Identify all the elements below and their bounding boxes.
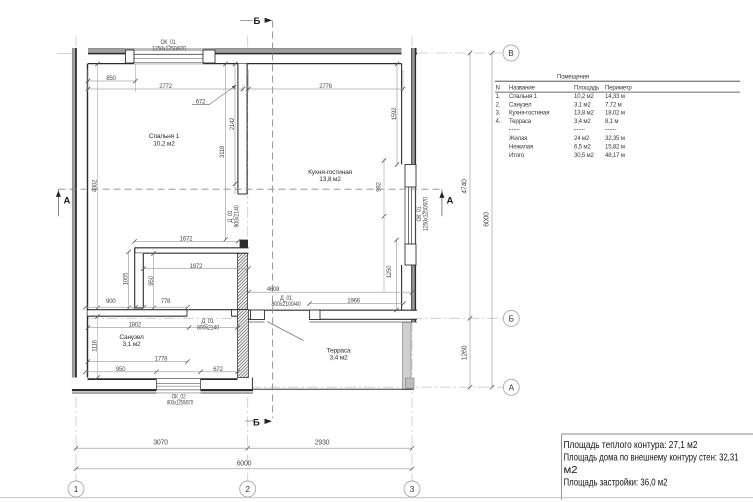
svg-text:950: 950: [148, 275, 155, 285]
svg-text:Площадь застройки: 36,0 м2: Площадь застройки: 36,0 м2: [564, 477, 668, 488]
svg-text:18,02 м: 18,02 м: [605, 110, 625, 117]
svg-text:м2: м2: [564, 465, 578, 476]
svg-text:1260: 1260: [462, 345, 469, 360]
svg-text:Жилая: Жилая: [509, 135, 527, 142]
svg-text:992: 992: [376, 181, 383, 191]
svg-text:13,8 м2: 13,8 м2: [574, 110, 595, 117]
svg-text:900: 900: [106, 298, 116, 305]
svg-text:1250х1250/870: 1250х1250/870: [152, 45, 187, 52]
svg-text:800х2140: 800х2140: [197, 325, 220, 332]
svg-text:13,8 м2: 13,8 м2: [319, 176, 341, 183]
svg-text:2: 2: [245, 485, 250, 494]
svg-text:6000: 6000: [237, 461, 252, 468]
svg-text:3,1 м2: 3,1 м2: [123, 341, 142, 348]
svg-text:Название: Название: [509, 84, 535, 91]
svg-text:1005: 1005: [123, 272, 130, 285]
svg-text:672: 672: [213, 366, 223, 373]
svg-text:Кухня-гостиная: Кухня-гостиная: [308, 169, 352, 176]
svg-text:1: 1: [74, 485, 79, 494]
svg-text:Итого: Итого: [509, 152, 525, 159]
svg-text:4.: 4.: [496, 118, 501, 125]
svg-text:30,5 м2: 30,5 м2: [574, 152, 595, 159]
svg-text:10,2 м2: 10,2 м2: [153, 140, 175, 147]
svg-text:Помещения: Помещения: [557, 74, 589, 81]
svg-text:3070: 3070: [153, 440, 168, 447]
svg-text:Санузел: Санузел: [509, 101, 532, 108]
svg-text:1672: 1672: [180, 236, 193, 243]
svg-text:1592: 1592: [391, 107, 398, 120]
svg-text:2.: 2.: [496, 101, 501, 108]
svg-text:А: А: [509, 383, 515, 392]
svg-text:1250х1250/870: 1250х1250/870: [422, 196, 429, 231]
svg-text:6000: 6000: [483, 212, 490, 227]
svg-text:А: А: [64, 196, 71, 207]
svg-text:3.: 3.: [496, 110, 501, 117]
svg-text:48,17 м: 48,17 м: [605, 152, 625, 159]
svg-text:7,72 м: 7,72 м: [605, 101, 622, 108]
svg-text:Терраса: Терраса: [327, 347, 351, 354]
svg-text:10,2 м2: 10,2 м2: [574, 93, 595, 100]
svg-text:1778: 1778: [155, 356, 168, 363]
svg-text:2776: 2776: [319, 83, 332, 90]
svg-text:2930: 2930: [315, 440, 330, 447]
svg-text:Терраса: Терраса: [509, 118, 532, 125]
svg-text:3,4 м2: 3,4 м2: [330, 354, 349, 361]
svg-text:Площадь: Площадь: [574, 84, 599, 91]
svg-text:Площадь теплого контура: 27,1: Площадь теплого контура: 27,1 м2: [564, 440, 698, 451]
svg-text:Площадь дома по внешнему конту: Площадь дома по внешнему контуру стен: 3…: [564, 453, 739, 464]
svg-text:3: 3: [410, 485, 415, 494]
svg-text:778: 778: [161, 298, 171, 305]
svg-text:4740: 4740: [461, 179, 468, 194]
svg-text:24 м2: 24 м2: [574, 135, 590, 142]
svg-text:1116: 1116: [91, 339, 98, 352]
svg-text:8,1 м: 8,1 м: [605, 118, 618, 125]
svg-text:Нежилая: Нежилая: [509, 144, 533, 151]
svg-text:1.: 1.: [496, 93, 501, 100]
svg-text:3,4 м2: 3,4 м2: [574, 118, 591, 125]
svg-text:1250: 1250: [386, 265, 393, 278]
svg-text:Кухня-гостиная: Кухня-гостиная: [509, 110, 549, 117]
svg-text:N: N: [496, 84, 500, 91]
svg-text:Б: Б: [509, 314, 514, 323]
svg-text:2772: 2772: [159, 83, 172, 90]
svg-text:800х1250/870: 800х1250/870: [167, 399, 194, 406]
svg-text:15,82 м: 15,82 м: [605, 144, 625, 151]
svg-text:1872: 1872: [190, 263, 203, 270]
svg-text:2142: 2142: [229, 117, 236, 130]
svg-text:800х2140: 800х2140: [233, 205, 240, 228]
svg-text:Спальня 1: Спальня 1: [509, 93, 538, 100]
svg-text:Санузел: Санузел: [119, 334, 144, 341]
svg-text:Б: Б: [253, 418, 260, 429]
svg-text:6,5 м2: 6,5 м2: [574, 144, 591, 151]
svg-text:В: В: [508, 49, 514, 58]
svg-text:4608: 4608: [267, 286, 280, 293]
svg-text:3,1 м2: 3,1 м2: [574, 101, 591, 108]
svg-text:14,33 м: 14,33 м: [605, 93, 625, 100]
svg-text:950: 950: [116, 366, 126, 373]
svg-text:1802: 1802: [129, 322, 142, 329]
svg-text:1966: 1966: [347, 298, 360, 305]
svg-text:4302: 4302: [91, 179, 98, 192]
svg-text:Периметр: Периметр: [605, 84, 632, 91]
svg-text:Спальня 1: Спальня 1: [149, 133, 180, 140]
svg-text:3118: 3118: [219, 145, 226, 158]
svg-text:Б: Б: [254, 16, 261, 27]
svg-text:32,35 м: 32,35 м: [605, 135, 625, 142]
svg-text:850: 850: [106, 75, 116, 82]
svg-text:А: А: [447, 196, 454, 207]
svg-text:800х2100/40: 800х2100/40: [272, 301, 302, 308]
